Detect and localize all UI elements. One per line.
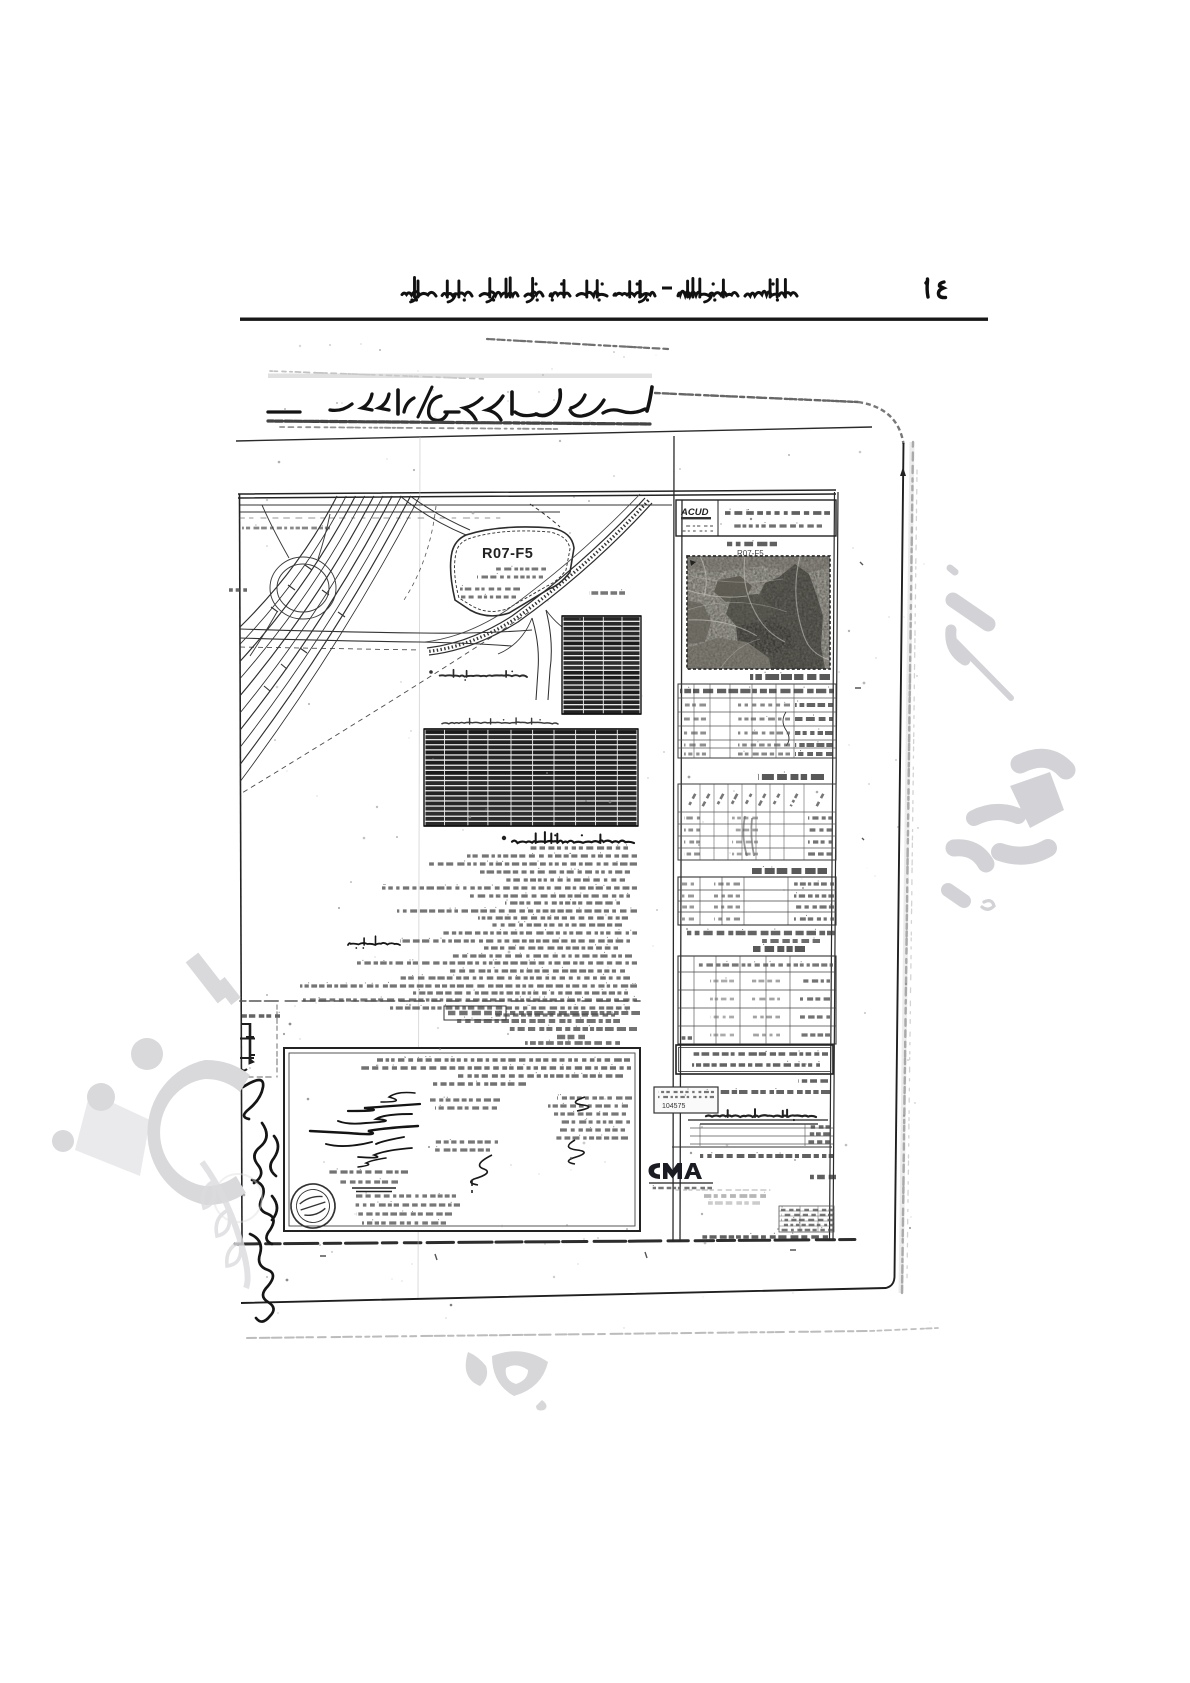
svg-text:R07-F5: R07-F5 xyxy=(482,546,533,562)
svg-text:ACUD: ACUD xyxy=(680,507,709,518)
svg-text:104575: 104575 xyxy=(662,1103,685,1110)
